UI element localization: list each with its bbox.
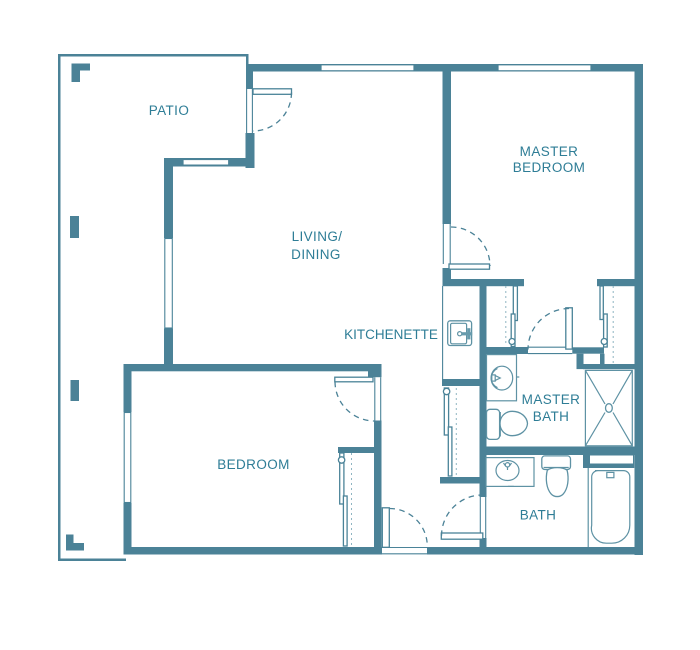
svg-text:MASTER: MASTER bbox=[520, 144, 579, 159]
svg-text:BEDROOM: BEDROOM bbox=[217, 457, 290, 472]
svg-text:DINING: DINING bbox=[291, 247, 341, 262]
svg-text:BEDROOM: BEDROOM bbox=[513, 160, 586, 175]
svg-text:LIVING/: LIVING/ bbox=[292, 229, 343, 244]
svg-text:PATIO: PATIO bbox=[149, 103, 190, 118]
svg-text:KITCHENETTE: KITCHENETTE bbox=[344, 327, 438, 342]
svg-text:BATH: BATH bbox=[533, 409, 570, 424]
svg-text:MASTER: MASTER bbox=[522, 392, 581, 407]
svg-text:BATH: BATH bbox=[520, 508, 557, 523]
